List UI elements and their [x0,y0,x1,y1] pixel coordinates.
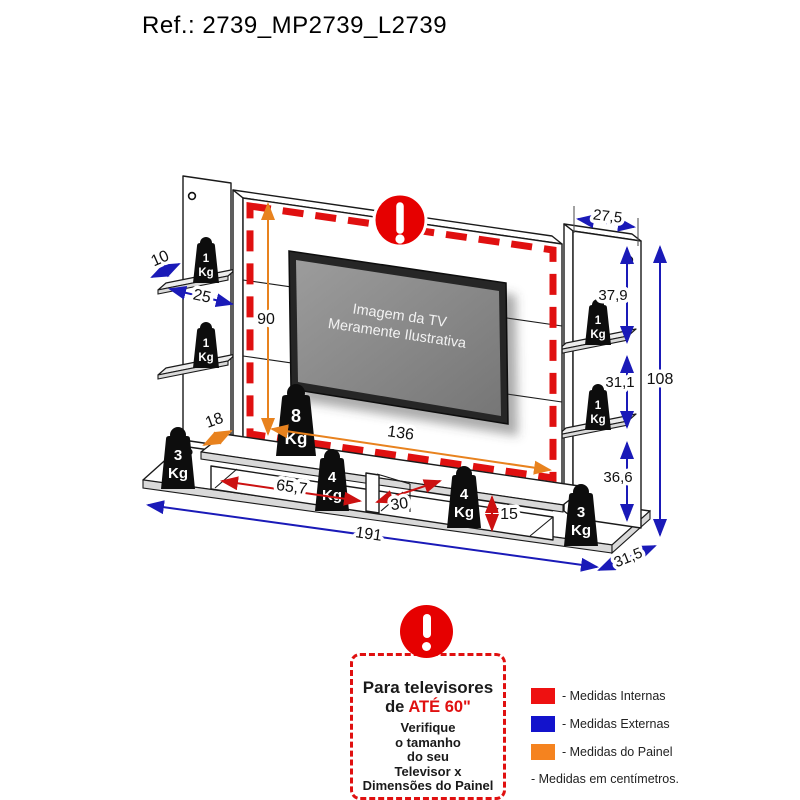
warning-body-line: do seu [353,750,503,765]
page: Ref.: 2739_MP2739_L2739 [0,0,800,800]
console-divider [366,473,379,513]
warning-title-line1: Para televisores [353,678,503,697]
warning-box: Para televisores de ATÉ 60" Verifique o … [350,653,506,800]
legend-item-internal: - Medidas Internas [531,688,679,704]
legend-label-internal: - Medidas Internas [562,689,666,703]
warning-body-line: Televisor x [353,765,503,780]
svg-text:1: 1 [595,315,602,327]
dim-label-top-to-shelf: 37,9 [598,287,627,304]
legend-item-panel: - Medidas do Painel [531,744,679,760]
legend-swatch-external [531,716,555,732]
svg-text:1: 1 [203,338,210,350]
svg-text:4: 4 [328,469,337,486]
dim-label-niche-height: 15 [500,506,518,523]
legend-label-external: - Medidas Externas [562,717,670,731]
svg-text:Kg: Kg [454,504,474,521]
left-back-panel [183,176,231,455]
legend: - Medidas Internas - Medidas Externas - … [531,688,679,786]
dim-label-between-shelves: 31,1 [605,374,634,391]
dim-label-shelf-to-base: 36,6 [603,469,632,486]
legend-swatch-panel [531,744,555,760]
svg-text:8: 8 [291,406,301,426]
warning-body: Verifique o tamanho do seu Televisor x D… [353,721,503,794]
warning-body-line: o tamanho [353,736,503,751]
dim-label-total-height: 108 [647,371,674,388]
legend-item-external: - Medidas Externas [531,716,679,732]
legend-label-panel: - Medidas do Painel [562,745,672,759]
dim-label-side-top-depth: 27,5 [592,206,623,226]
warning-body-line: Dimensões do Painel [353,779,503,794]
dim-label-total-width: 191 [354,524,383,545]
legend-note: - Medidas em centímetros. [531,772,679,786]
svg-text:1: 1 [595,400,602,412]
svg-text:Kg: Kg [571,522,591,539]
warning-body-line: Verifique [353,721,503,736]
legend-swatch-internal [531,688,555,704]
exclamation-dot [422,642,431,651]
svg-text:Kg: Kg [198,267,213,279]
svg-text:Kg: Kg [590,329,605,341]
warning-title-line2: de ATÉ 60" [353,697,503,717]
svg-text:Kg: Kg [590,414,605,426]
exclamation-bar [423,614,431,638]
warning-size-highlight: ATÉ 60" [408,698,471,716]
svg-text:Kg: Kg [198,352,213,364]
svg-text:1: 1 [203,253,210,265]
dim-label-shelf-width: 25 [191,286,212,306]
warning-size-prefix: de [385,698,404,716]
dim-label-inner-height: 90 [257,311,275,328]
svg-text:4: 4 [460,486,469,503]
dim-label-shelf-depth: 10 [149,247,172,270]
dim-label-cable-gap-width: 30 [389,495,409,514]
hole-top-left [189,193,196,200]
warning-icon-top [374,194,426,246]
warning-icon-bottom [400,605,453,658]
svg-text:3: 3 [174,447,182,464]
svg-text:3: 3 [577,504,585,521]
svg-text:Kg: Kg [168,465,188,482]
